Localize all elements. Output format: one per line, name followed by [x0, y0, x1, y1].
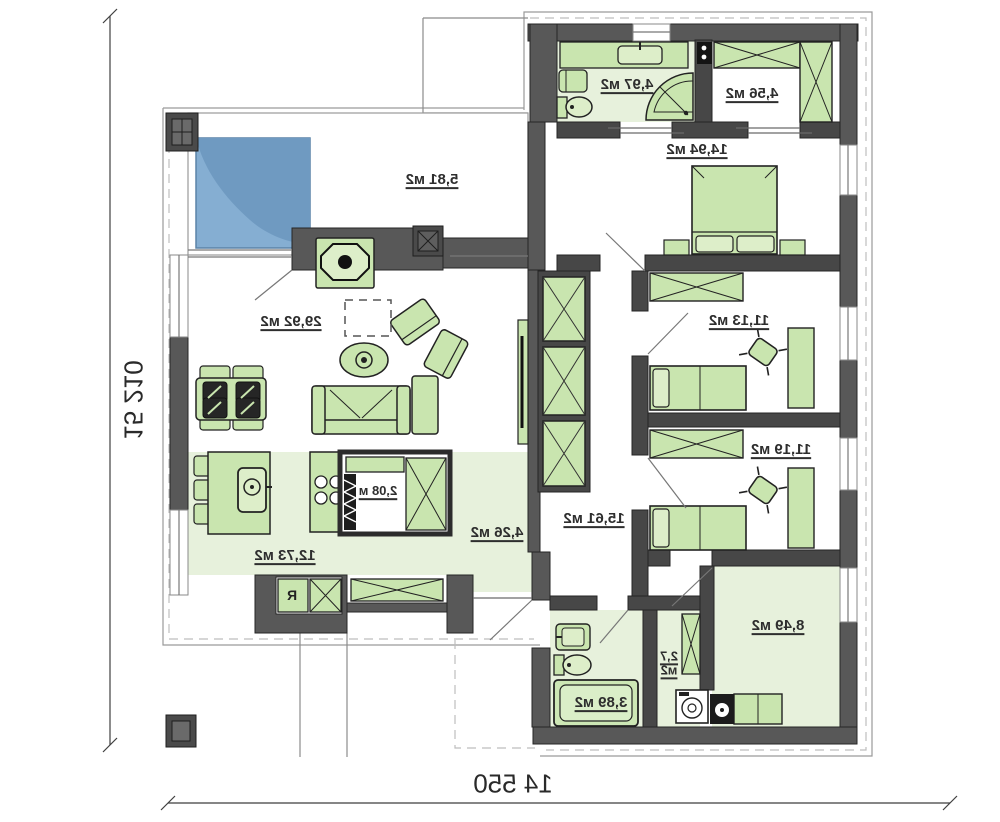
toilet-top: [557, 97, 592, 118]
desk: [788, 468, 814, 548]
fridge-hatch: [344, 474, 356, 530]
floor-plan: 5,81 м2 4,97 м2 4,56 м2 14,94 м2 11,13 м…: [0, 0, 1000, 822]
room-label-wc: 2,7 м2: [660, 649, 678, 676]
walkway-lines: [300, 633, 347, 757]
room-label-terrace: 5,81 м2: [406, 172, 459, 188]
bedroom-main-furniture: [664, 166, 805, 255]
room-label-living: 29,92 м2: [260, 314, 321, 330]
fridge-tag: R: [287, 587, 297, 603]
kitchen-sink: [238, 468, 272, 512]
washer: [559, 70, 587, 92]
toilet-bottom: [554, 655, 591, 675]
room-label-bedroom-two: 11,19 м2: [751, 442, 811, 458]
dimension-height: 15 210: [118, 360, 149, 440]
column-terrace: [166, 113, 198, 151]
dining-set: [196, 366, 266, 430]
corridor-wardrobes: [538, 271, 590, 492]
nightstand-right: [780, 240, 805, 255]
room-label-utility: 8,49 м2: [752, 618, 805, 634]
room-label-kitchen: 12,73 м2: [254, 548, 315, 564]
dimension-width: 14 550: [473, 769, 553, 800]
side-table: [412, 376, 438, 434]
armchair-2: [423, 328, 469, 379]
coffee-table: [340, 343, 388, 377]
sofa: [312, 386, 410, 434]
room-label-bath-top: 4,97 м2: [601, 77, 654, 93]
planned-furniture-outline: [345, 300, 391, 336]
room-label-bedroom-main: 14,94 м2: [666, 142, 727, 158]
bedroom-one-furniture: [650, 273, 814, 410]
nightstand-left: [664, 240, 689, 255]
room-label-bedroom-one: 11,13 м2: [709, 313, 769, 329]
room-label-pantry: 2,08 м: [359, 484, 398, 498]
column-garden: [166, 715, 196, 747]
room-label-dressing: 4,56 м2: [726, 86, 779, 102]
washing-machine: [676, 690, 708, 723]
living-room-furniture: [196, 298, 528, 444]
kitchen-furniture: [194, 452, 342, 534]
dark-sink: [710, 694, 734, 724]
armchair-1: [389, 298, 441, 347]
dressing-wardrobes: [714, 42, 832, 122]
room-label-corridor: 15,61 м2: [563, 511, 624, 527]
electric-panel: [697, 42, 712, 64]
fireplace: [316, 238, 374, 288]
room-label-hall: 4,26 м2: [471, 525, 524, 541]
column-fireplace: [413, 226, 443, 256]
floor-plan-drawing: [0, 0, 1000, 822]
desk: [788, 328, 814, 408]
room-label-bathroom: 3,89 м2: [575, 695, 628, 711]
washbasin-bottom: [556, 624, 590, 650]
